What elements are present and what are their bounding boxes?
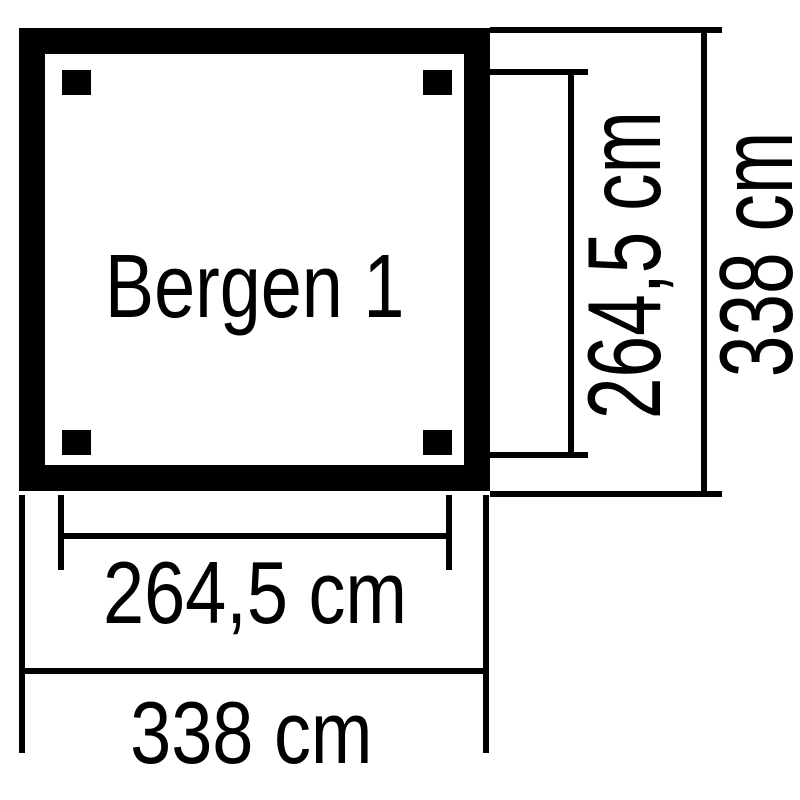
extension-line-outer-top bbox=[490, 27, 722, 33]
post-bottom-left bbox=[62, 430, 91, 455]
floor-plan-diagram: Bergen 1 264,5 cm 338 cm 264,5 cm 338 cm bbox=[0, 0, 800, 800]
post-top-right bbox=[423, 70, 452, 95]
dimension-label-vertical-outer-text: 338 cm bbox=[705, 131, 800, 377]
extension-line-outer-bottom bbox=[490, 491, 722, 497]
dimension-label-vertical-outer: 338 cm bbox=[702, 54, 800, 454]
dimension-label-horizontal-outer-text: 338 cm bbox=[130, 689, 372, 777]
dimension-label-horizontal-outer: 338 cm bbox=[51, 688, 451, 778]
dimension-label-horizontal-inner-text: 264,5 cm bbox=[103, 549, 407, 637]
dimension-label-vertical-inner-text: 264,5 cm bbox=[573, 111, 677, 419]
extension-line-bottom-outer-left bbox=[19, 495, 25, 753]
dimension-line-horizontal-outer bbox=[19, 668, 489, 674]
product-name-label: Bergen 1 bbox=[19, 237, 490, 337]
dimension-line-horizontal-inner bbox=[58, 533, 452, 539]
post-bottom-right bbox=[423, 430, 452, 455]
extension-line-bottom-outer-right bbox=[483, 495, 489, 753]
post-top-left bbox=[62, 70, 91, 95]
product-name-text: Bergen 1 bbox=[105, 242, 405, 332]
dimension-label-horizontal-inner: 264,5 cm bbox=[55, 548, 455, 638]
dimension-label-vertical-inner: 264,5 cm bbox=[570, 65, 680, 465]
